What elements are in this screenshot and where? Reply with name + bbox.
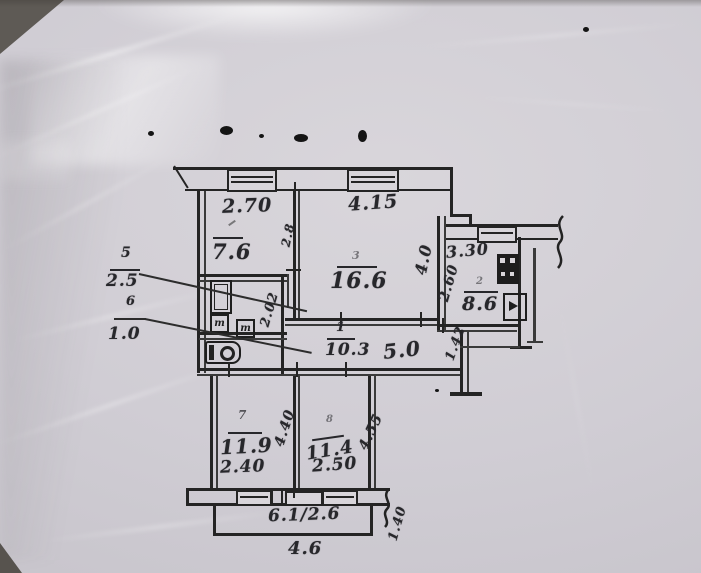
dim-hall-length: 5.0 (382, 336, 422, 364)
wall (210, 376, 213, 490)
entry-threshold (450, 392, 482, 396)
wall (285, 324, 437, 326)
wall (216, 376, 218, 488)
dim-room-small-width: 2.70 (222, 194, 273, 218)
burner (501, 272, 505, 276)
dimension-tick (286, 269, 301, 271)
wall (285, 318, 437, 321)
dim-room-right-width: 2.50 (311, 453, 358, 476)
room-number: 7 (238, 408, 246, 422)
wall (450, 167, 453, 216)
room-number: 8 (326, 414, 333, 425)
dimension-tick (228, 362, 230, 377)
burner (510, 272, 514, 276)
dimension-tick (293, 483, 295, 498)
balcony-door-jamb (281, 488, 283, 505)
window-icon (227, 169, 277, 192)
wall (293, 191, 296, 321)
wall (437, 330, 517, 332)
dimension-tick (296, 362, 298, 377)
wall (185, 189, 453, 191)
bathtub-icon (210, 280, 232, 314)
dim-hall-inner-depth: 2.02 (258, 290, 282, 328)
dim-balcony-width: 4.6 (288, 538, 322, 559)
room-number: 3 (352, 249, 360, 262)
floor-plan-drawing: т т (0, 0, 701, 573)
balcony-wall (213, 506, 216, 536)
wall (186, 488, 189, 506)
wall (298, 191, 300, 321)
dimension-tick (420, 312, 422, 327)
room-number: 2 (476, 276, 483, 287)
wall (527, 341, 543, 343)
washbasin-icon: т (210, 314, 229, 333)
wall (173, 167, 453, 170)
dimension-tick (345, 362, 347, 377)
wall (437, 216, 440, 330)
room-number-bathroom: 5 (121, 245, 132, 261)
dim-room-large-width: 4.15 (347, 190, 399, 215)
wall (197, 368, 460, 371)
stove-icon (497, 254, 519, 284)
toilet-icon (205, 341, 241, 364)
area-room-small: 7.6 (212, 239, 252, 264)
wall (197, 374, 460, 376)
balcony-door-jamb (271, 488, 273, 505)
wall (533, 248, 536, 343)
burner (510, 258, 515, 263)
wall (467, 330, 469, 394)
area-wc: 1.0 (108, 324, 141, 344)
dim-room-large-depth: 4.0 (411, 242, 436, 276)
area-room-large: 16.6 (330, 268, 388, 294)
dim-room-left-width: 2.40 (220, 456, 266, 478)
sink-icon (503, 293, 527, 321)
sink-mark (509, 301, 518, 311)
window-icon (347, 169, 399, 192)
wall (293, 376, 296, 488)
wall (199, 274, 289, 277)
photo-of-floor-plan: т т (0, 0, 701, 573)
dim-room-right-depth: 4.55 (356, 411, 387, 452)
bathtub-inner (214, 284, 228, 310)
area-kitchen: 8.6 (462, 293, 498, 315)
area-hall: 10.3 (325, 340, 370, 360)
room-number-hall: 1 (336, 320, 346, 335)
room-number-wc: 6 (126, 294, 136, 309)
balcony-wall (370, 506, 373, 536)
room-number-mark (228, 220, 236, 226)
area-room-left: 11.9 (219, 433, 273, 460)
toilet-tank (209, 345, 214, 360)
dim-kitchen-width: 3.30 (445, 239, 489, 262)
dimension-line (460, 346, 520, 348)
wall (197, 191, 200, 373)
window-icon (236, 490, 272, 506)
wall (281, 274, 284, 374)
basin-letter: т (240, 323, 251, 334)
wall (298, 376, 300, 488)
wall (437, 324, 521, 327)
washbasin-icon: т (236, 319, 255, 338)
toilet-bowl (220, 346, 235, 361)
leader-line (114, 318, 146, 320)
area-bathroom: 2.5 (106, 271, 139, 291)
dimension-tick (442, 318, 444, 333)
balcony-area-label: 6.1/2.6 (268, 504, 341, 527)
wall-break-squiggle (551, 214, 569, 270)
balcony-wall (213, 533, 373, 536)
burner (500, 258, 505, 263)
basin-letter: т (214, 318, 225, 329)
wall (287, 274, 289, 308)
